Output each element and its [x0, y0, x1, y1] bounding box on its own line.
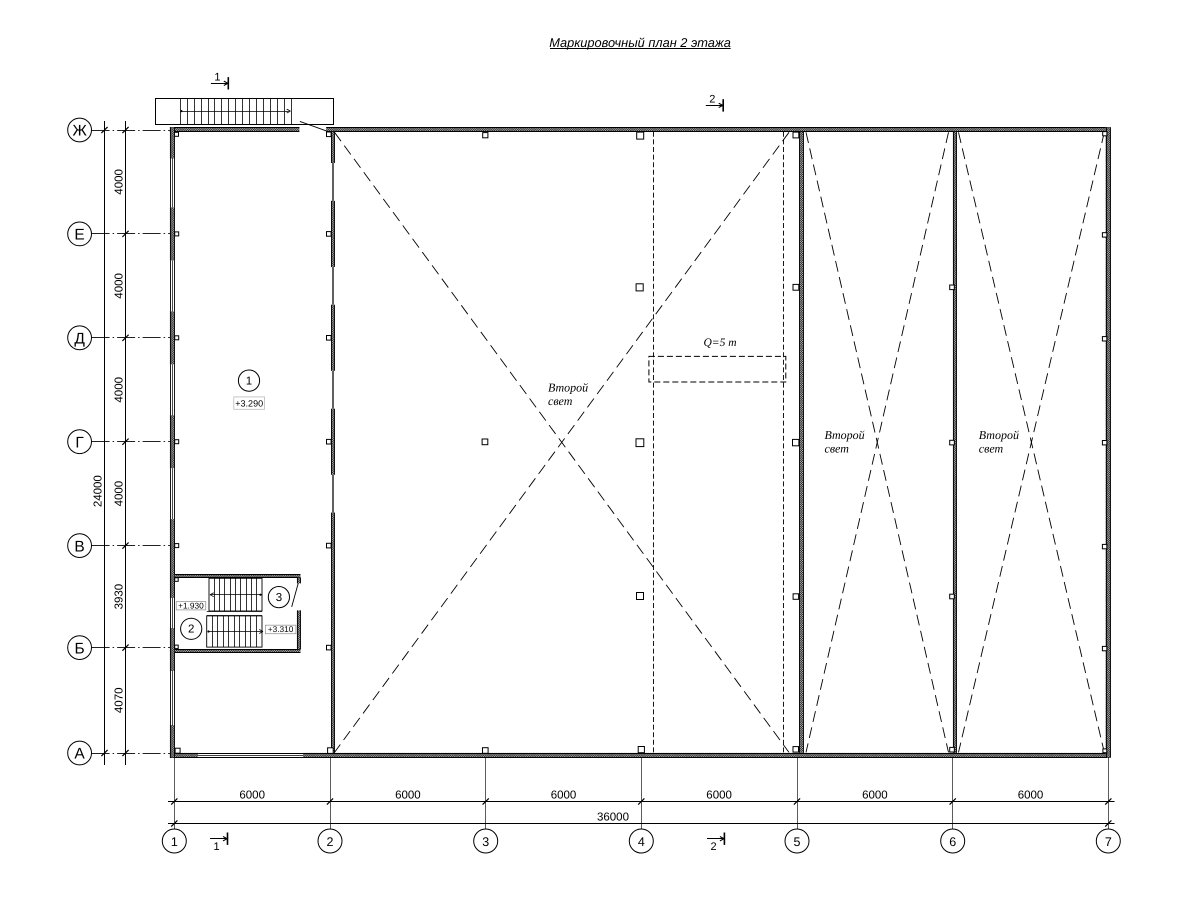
svg-text:6000: 6000: [706, 789, 732, 801]
svg-text:В: В: [74, 538, 84, 555]
svg-text:Второй: Второй: [979, 428, 1019, 442]
svg-text:+3.310: +3.310: [268, 624, 294, 634]
svg-text:свет: свет: [979, 441, 1004, 455]
svg-text:6000: 6000: [239, 789, 265, 801]
svg-text:36000: 36000: [597, 811, 629, 823]
svg-text:+1.930: +1.930: [178, 600, 204, 610]
svg-text:4000: 4000: [114, 481, 126, 507]
svg-text:Ж: Ж: [72, 123, 87, 140]
svg-text:Д: Д: [74, 331, 85, 348]
svg-text:3: 3: [482, 835, 489, 849]
svg-text:Маркировочный план 2 этажа: Маркировочный план 2 этажа: [549, 35, 731, 50]
svg-text:свет: свет: [825, 441, 850, 455]
svg-text:6000: 6000: [395, 789, 421, 801]
svg-text:1: 1: [171, 835, 178, 849]
svg-text:Б: Б: [75, 640, 85, 657]
svg-text:А: А: [74, 746, 85, 763]
svg-text:4070: 4070: [114, 688, 126, 714]
svg-text:2: 2: [188, 624, 194, 636]
svg-text:Е: Е: [74, 227, 84, 244]
svg-text:24000: 24000: [93, 475, 105, 507]
svg-text:Г: Г: [75, 434, 84, 451]
svg-text:4000: 4000: [114, 169, 126, 195]
svg-text:4000: 4000: [114, 377, 126, 403]
svg-text:Q=5 т: Q=5 т: [704, 337, 737, 349]
svg-text:7: 7: [1105, 835, 1112, 849]
svg-text:2: 2: [327, 835, 334, 849]
svg-text:6000: 6000: [551, 789, 577, 801]
svg-text:Второй: Второй: [548, 381, 588, 395]
svg-text:3: 3: [276, 592, 282, 604]
svg-text:6: 6: [949, 835, 956, 849]
svg-text:6000: 6000: [1018, 789, 1044, 801]
svg-text:4000: 4000: [114, 273, 126, 299]
svg-text:свет: свет: [548, 394, 573, 408]
svg-text:Второй: Второй: [825, 428, 865, 442]
svg-text:2: 2: [710, 841, 716, 853]
svg-text:4: 4: [638, 835, 645, 849]
svg-text:1: 1: [246, 376, 252, 388]
svg-text:1: 1: [214, 72, 220, 84]
svg-text:+3.290: +3.290: [235, 399, 263, 409]
svg-text:2: 2: [709, 94, 715, 106]
svg-text:5: 5: [794, 835, 801, 849]
svg-text:1: 1: [214, 841, 220, 853]
svg-text:6000: 6000: [862, 789, 888, 801]
svg-text:3930: 3930: [114, 584, 126, 610]
